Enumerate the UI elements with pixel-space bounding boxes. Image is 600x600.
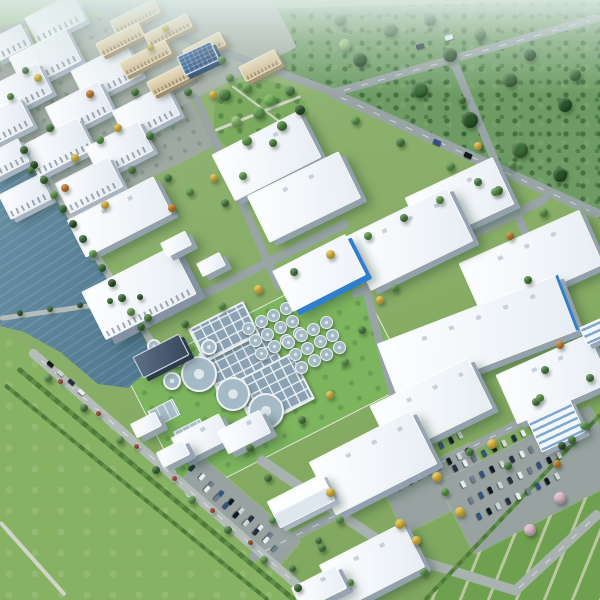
tree (432, 472, 442, 482)
tree (541, 366, 549, 374)
tree (536, 394, 544, 402)
tree (71, 154, 79, 162)
tree (412, 536, 421, 545)
tree (443, 48, 457, 62)
tree (22, 67, 29, 74)
digester-tank (308, 354, 321, 367)
digester-tank (295, 361, 308, 374)
tree (27, 167, 34, 174)
tree (503, 73, 517, 87)
tree (231, 116, 241, 126)
tree (218, 302, 226, 310)
tree (77, 302, 83, 308)
tree (474, 178, 482, 186)
shrub (248, 540, 253, 545)
car (520, 429, 526, 437)
tree (318, 544, 326, 552)
tree (353, 53, 367, 67)
tree (400, 214, 408, 222)
car (457, 431, 463, 439)
tree (17, 310, 23, 316)
tree (108, 279, 116, 287)
car (501, 439, 507, 447)
tree (474, 29, 486, 41)
tree (277, 121, 287, 131)
digester-tank (261, 328, 274, 341)
tree (128, 166, 136, 174)
tree (391, 284, 399, 292)
tree (289, 565, 296, 572)
tree (569, 69, 581, 81)
tree (556, 341, 564, 349)
tree (7, 93, 14, 100)
tree (474, 142, 482, 150)
tree (46, 124, 54, 132)
tree (254, 285, 263, 294)
tree (253, 107, 265, 119)
tree (383, 23, 397, 37)
car (481, 449, 487, 457)
tree (298, 416, 306, 424)
tree (219, 89, 231, 101)
tree (242, 83, 252, 93)
tree (339, 39, 351, 51)
tree (221, 199, 229, 207)
digester-tank (320, 348, 333, 361)
tree (210, 174, 218, 182)
clarifier-tank (216, 377, 250, 411)
tree (107, 298, 113, 304)
tree (264, 94, 276, 106)
tree (80, 404, 88, 412)
tree (86, 90, 94, 98)
aerial-industrial-park-render (0, 0, 600, 600)
car (448, 436, 454, 444)
tree (294, 584, 302, 592)
clarifier-tank (181, 356, 217, 392)
tree (269, 517, 276, 524)
shrub (58, 379, 63, 384)
tree (137, 294, 143, 300)
tree (96, 136, 104, 144)
tree (152, 466, 160, 474)
tree (209, 91, 217, 99)
tree (162, 25, 169, 32)
tree (506, 232, 514, 240)
tree (508, 161, 516, 169)
tree (491, 188, 499, 196)
tree (89, 250, 97, 258)
tree (412, 82, 428, 98)
tree (116, 436, 124, 444)
tree (164, 174, 172, 182)
tree (539, 208, 548, 217)
tree (242, 136, 252, 146)
tree (524, 276, 532, 284)
tree (59, 205, 67, 213)
digester-tank (314, 335, 327, 348)
tree (568, 436, 576, 444)
tree (326, 250, 335, 259)
tree (285, 86, 295, 96)
tree (336, 516, 344, 524)
shrub (210, 508, 215, 513)
tree (50, 191, 58, 199)
car (511, 434, 517, 442)
tree (260, 556, 268, 564)
tree (181, 320, 189, 328)
tree (466, 448, 474, 456)
tree (553, 168, 567, 182)
tree (334, 14, 346, 26)
shrub (172, 476, 177, 481)
tree (455, 507, 465, 517)
tree (79, 235, 87, 243)
tree (239, 172, 247, 180)
clarifier-tank (201, 339, 217, 355)
tree (118, 294, 126, 302)
tree (188, 496, 196, 504)
digester-tank (333, 341, 346, 354)
tree (436, 196, 444, 204)
tree (351, 116, 360, 125)
tree (315, 537, 322, 544)
digester-tank (289, 348, 302, 361)
tree (341, 358, 349, 366)
tree (184, 88, 192, 96)
tree (146, 132, 154, 140)
tree (34, 74, 42, 82)
tree (364, 232, 372, 240)
tree (504, 462, 512, 470)
tree (512, 142, 528, 158)
tree (396, 138, 405, 147)
tree (226, 74, 234, 82)
tree (144, 314, 152, 322)
tree (558, 442, 566, 450)
tree (218, 56, 226, 64)
tree (586, 374, 594, 382)
tree (326, 488, 335, 497)
tree (558, 98, 572, 112)
tree (458, 96, 466, 104)
tree (224, 526, 232, 534)
tree (47, 306, 53, 312)
warehouse-building (196, 251, 226, 276)
tree (553, 460, 561, 468)
tree (358, 326, 366, 334)
tree (290, 268, 298, 276)
tree (376, 296, 384, 304)
tree (347, 579, 354, 586)
shrub (134, 444, 139, 449)
tree (462, 112, 478, 128)
tree (61, 184, 69, 192)
clarifier-tank (163, 372, 181, 390)
tree (246, 444, 254, 452)
digester-tank (301, 342, 314, 355)
tree (487, 439, 497, 449)
tree (69, 220, 77, 228)
tree (127, 308, 135, 316)
tree (424, 14, 436, 26)
digester-tank (255, 347, 268, 360)
tree (580, 421, 589, 430)
digester-tank (268, 340, 281, 353)
digester-tank (242, 322, 255, 335)
digester-tank (249, 334, 262, 347)
car (438, 441, 444, 449)
digester-tank (274, 321, 287, 334)
tree (98, 264, 106, 272)
tree (441, 488, 449, 496)
tree (395, 519, 405, 529)
tree (137, 323, 145, 331)
tree (114, 124, 122, 132)
tree (40, 176, 48, 184)
shrub (96, 411, 101, 416)
tree (20, 146, 28, 154)
tree (269, 139, 277, 147)
tree (420, 568, 428, 576)
digester-tank (282, 336, 295, 349)
tree (554, 492, 566, 504)
tree (131, 88, 139, 96)
tree (524, 49, 536, 61)
tree (524, 524, 536, 536)
tree (295, 105, 305, 115)
tree (446, 162, 455, 171)
tree (44, 374, 52, 382)
tree (264, 474, 272, 482)
tree (147, 44, 154, 51)
tree (168, 204, 176, 212)
tree (101, 201, 109, 209)
tree (326, 391, 334, 399)
tree (186, 188, 194, 196)
